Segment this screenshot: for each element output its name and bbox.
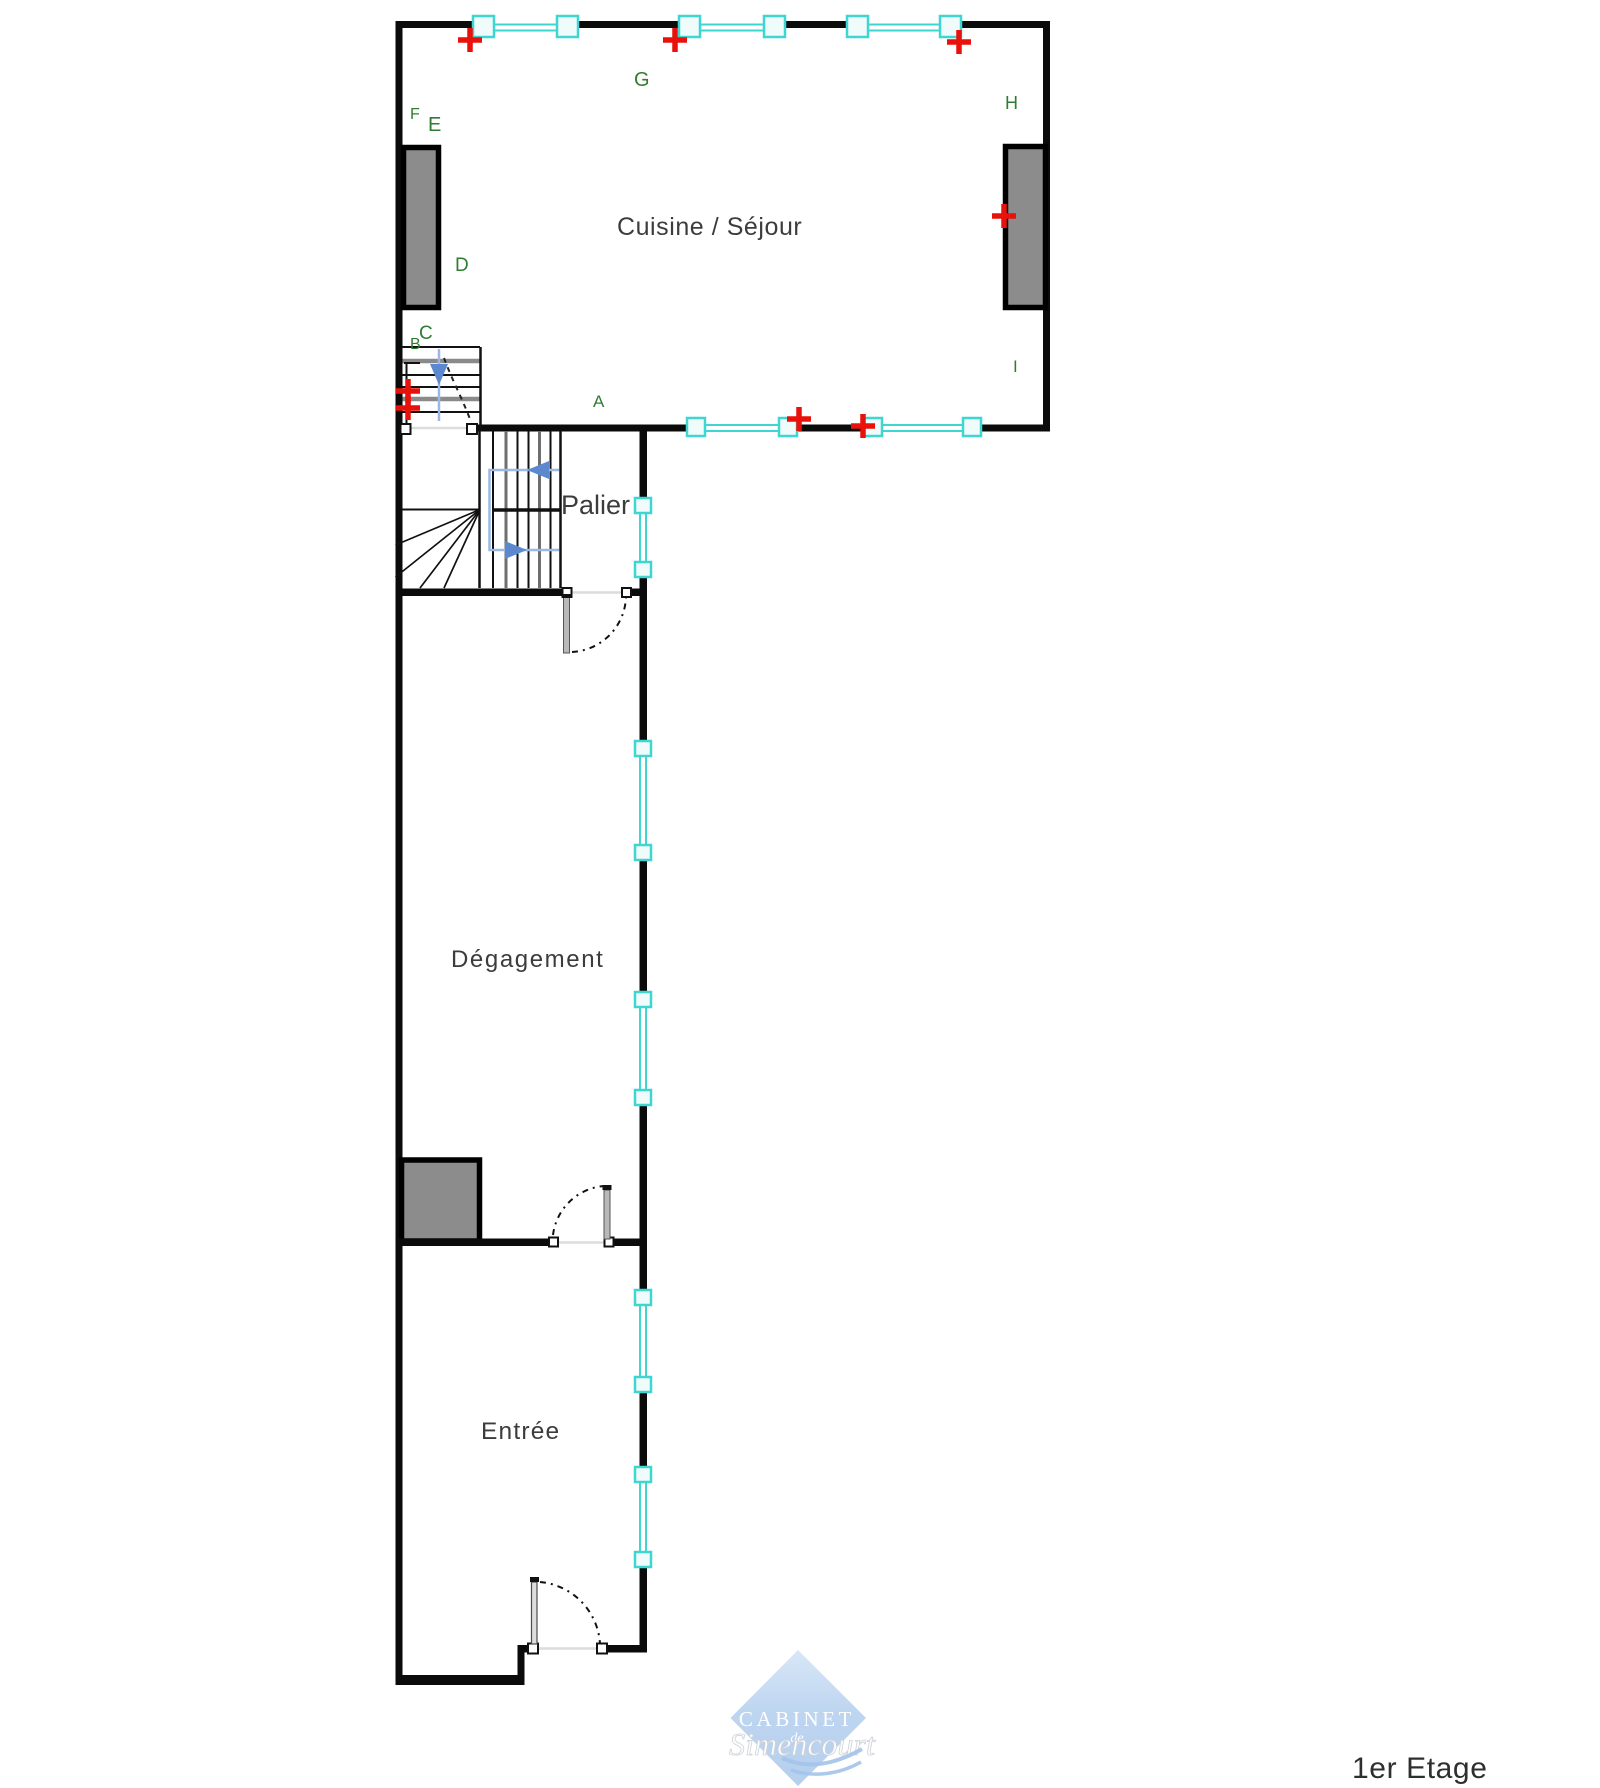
svg-text:F: F	[410, 106, 420, 123]
svg-text:Palier: Palier	[561, 490, 630, 520]
svg-text:Dégagement: Dégagement	[451, 946, 604, 973]
svg-text:E: E	[428, 114, 441, 136]
svg-text:Entrée: Entrée	[481, 1418, 560, 1445]
svg-text:Cuisine / Séjour: Cuisine / Séjour	[617, 213, 802, 241]
svg-text:G: G	[634, 69, 650, 91]
svg-text:B: B	[410, 336, 421, 353]
svg-text:H: H	[1005, 93, 1018, 113]
svg-text:I: I	[1013, 357, 1018, 376]
svg-text:A: A	[593, 392, 605, 411]
svg-text:1er Etage: 1er Etage	[1352, 1752, 1488, 1785]
svg-text:Simencourt: Simencourt	[729, 1726, 876, 1762]
svg-text:D: D	[455, 255, 469, 276]
svg-text:C: C	[419, 323, 433, 344]
